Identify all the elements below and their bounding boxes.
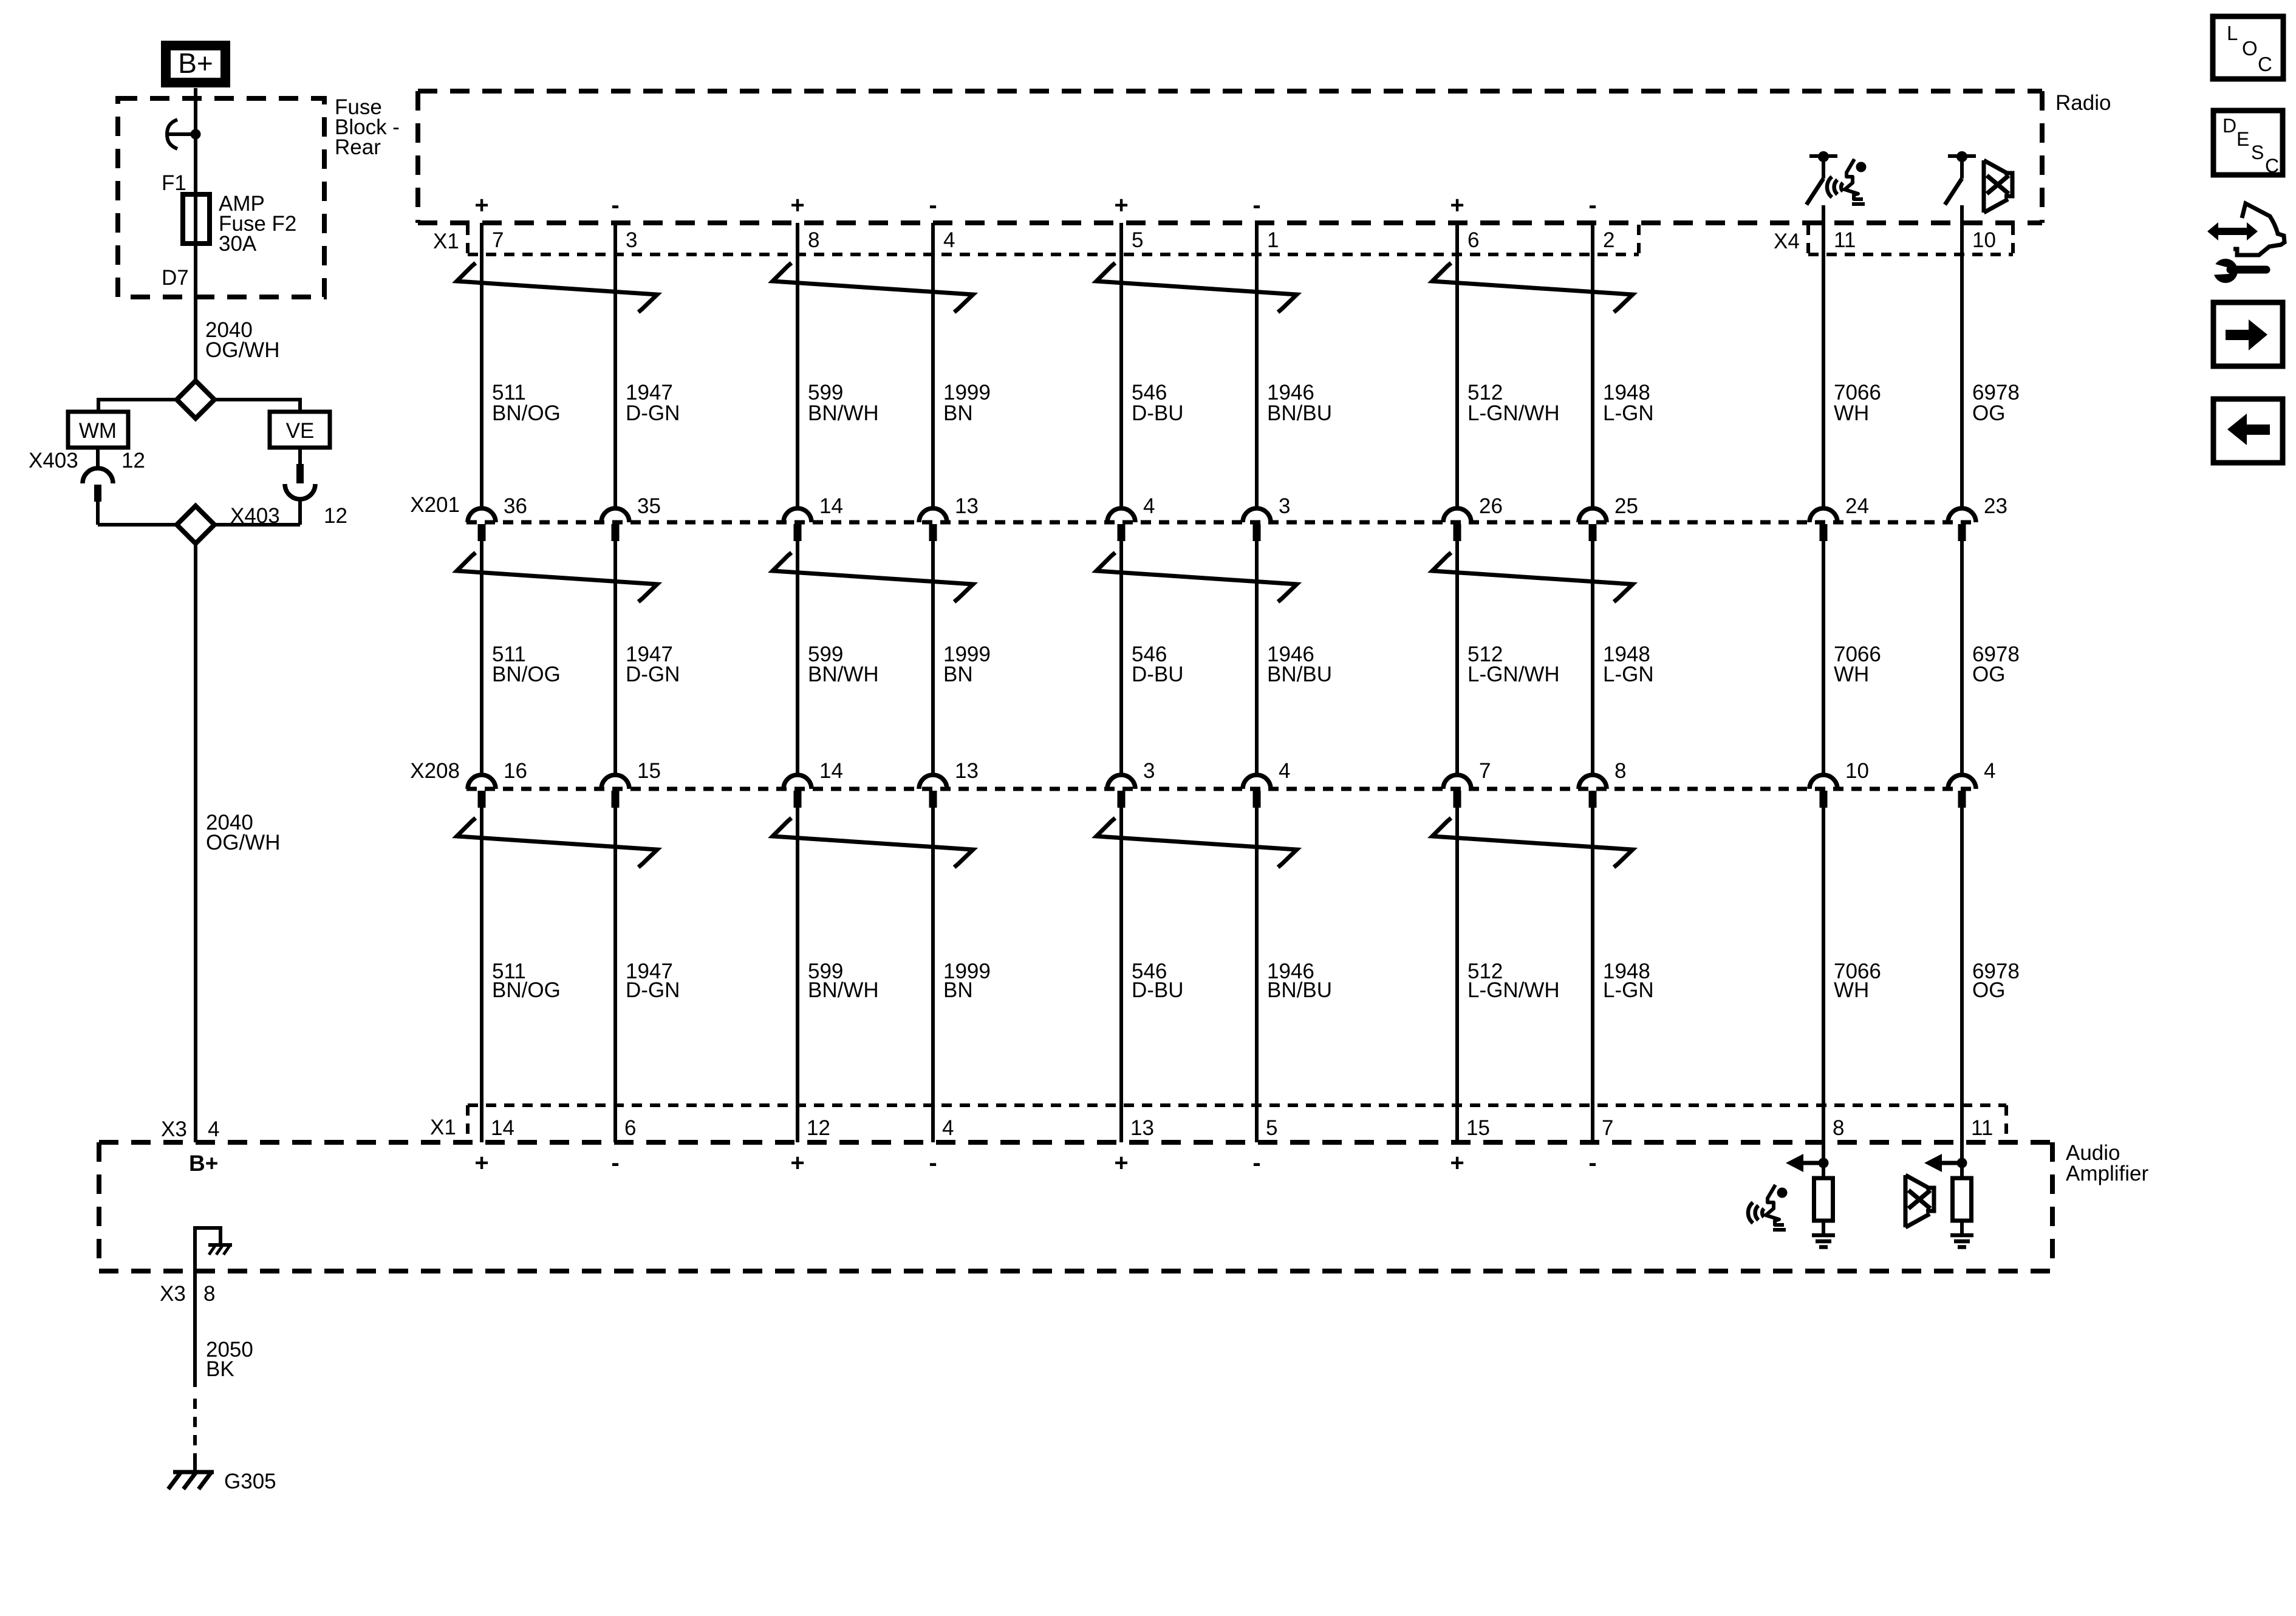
svg-text:14: 14: [819, 759, 843, 783]
svg-text:4: 4: [208, 1117, 219, 1141]
svg-text:14: 14: [819, 494, 843, 518]
svg-text:+: +: [474, 192, 488, 219]
svg-text:D-GN: D-GN: [626, 401, 680, 425]
svg-text:8: 8: [808, 228, 819, 252]
svg-text:D-BU: D-BU: [1132, 401, 1184, 425]
svg-text:X3: X3: [161, 1117, 187, 1141]
svg-text:4: 4: [942, 1116, 954, 1140]
svg-text:+: +: [1114, 1150, 1128, 1176]
svg-text:BN/OG: BN/OG: [492, 978, 561, 1002]
svg-text:23: 23: [1984, 494, 2007, 518]
svg-text:10: 10: [1845, 759, 1869, 783]
svg-text:X1: X1: [430, 1116, 456, 1139]
svg-text:-: -: [929, 1150, 937, 1176]
svg-text:8: 8: [1614, 759, 1626, 783]
svg-text:-: -: [611, 192, 619, 219]
svg-text:BN/WH: BN/WH: [808, 978, 879, 1002]
svg-text:X4: X4: [1774, 230, 1800, 253]
svg-text:BN/WH: BN/WH: [808, 663, 879, 686]
svg-text:8: 8: [203, 1282, 215, 1306]
svg-text:BN: BN: [943, 978, 973, 1002]
svg-text:13: 13: [1130, 1116, 1154, 1140]
svg-text:BN/OG: BN/OG: [492, 401, 561, 425]
svg-text:14: 14: [491, 1116, 514, 1140]
svg-text:OG/WH: OG/WH: [205, 338, 279, 362]
svg-text:OG: OG: [1972, 401, 2005, 425]
svg-text:13: 13: [955, 759, 979, 783]
svg-text:L-GN/WH: L-GN/WH: [1467, 401, 1560, 425]
svg-text:BN: BN: [943, 401, 973, 425]
svg-text:-: -: [1252, 1150, 1260, 1176]
svg-text:X3: X3: [160, 1282, 186, 1306]
svg-text:X1: X1: [433, 230, 459, 253]
svg-text:5: 5: [1132, 228, 1143, 252]
svg-text:5: 5: [1266, 1116, 1277, 1140]
svg-text:C: C: [2258, 53, 2272, 75]
svg-text:BN: BN: [943, 663, 973, 686]
svg-text:D-BU: D-BU: [1132, 978, 1184, 1002]
svg-text:S: S: [2251, 141, 2264, 163]
svg-text:Radio: Radio: [2055, 91, 2111, 115]
svg-text:D-BU: D-BU: [1132, 663, 1184, 686]
svg-text:2: 2: [1603, 228, 1614, 252]
svg-text:E: E: [2236, 128, 2249, 150]
svg-text:-: -: [1588, 1150, 1596, 1176]
svg-text:D-GN: D-GN: [626, 663, 680, 686]
svg-text:BN/WH: BN/WH: [808, 401, 879, 425]
svg-text:D: D: [2223, 115, 2236, 137]
svg-text:6: 6: [624, 1116, 636, 1140]
svg-text:+: +: [790, 192, 804, 219]
svg-text:OG: OG: [1972, 663, 2005, 686]
svg-text:11: 11: [1971, 1116, 1993, 1140]
svg-text:BK: BK: [206, 1357, 234, 1381]
svg-text:VE: VE: [286, 419, 315, 443]
svg-text:X208: X208: [410, 759, 460, 783]
svg-text:BN/OG: BN/OG: [492, 663, 561, 686]
svg-text:11: 11: [1834, 228, 1856, 252]
svg-text:3: 3: [1279, 494, 1290, 518]
svg-text:7: 7: [1479, 759, 1491, 783]
svg-text:+: +: [1114, 192, 1128, 219]
svg-text:OG: OG: [1972, 978, 2005, 1002]
svg-text:BN/BU: BN/BU: [1267, 978, 1332, 1002]
svg-text:+: +: [1450, 1150, 1464, 1176]
svg-text:WH: WH: [1834, 663, 1869, 686]
svg-text:24: 24: [1845, 494, 1869, 518]
svg-text:1: 1: [1267, 228, 1279, 252]
svg-text:B+: B+: [189, 1151, 218, 1176]
svg-text:G305: G305: [224, 1470, 276, 1493]
svg-text:BN/BU: BN/BU: [1267, 663, 1332, 686]
svg-text:4: 4: [943, 228, 955, 252]
svg-text:10: 10: [1972, 228, 1996, 252]
svg-text:L-GN: L-GN: [1603, 978, 1654, 1002]
svg-text:7: 7: [492, 228, 504, 252]
svg-text:4: 4: [1279, 759, 1290, 783]
svg-text:L: L: [2227, 22, 2238, 44]
svg-text:12: 12: [121, 449, 145, 472]
svg-text:X201: X201: [410, 493, 460, 517]
svg-text:15: 15: [1466, 1116, 1490, 1140]
svg-text:+: +: [790, 1150, 804, 1176]
svg-text:WM: WM: [79, 419, 117, 443]
svg-text:4: 4: [1984, 759, 1995, 783]
svg-text:D7: D7: [162, 266, 189, 290]
svg-text:8: 8: [1833, 1116, 1844, 1140]
svg-text:D-GN: D-GN: [626, 978, 680, 1002]
svg-text:L-GN/WH: L-GN/WH: [1467, 663, 1560, 686]
svg-text:B+: B+: [178, 47, 213, 79]
svg-text:+: +: [474, 1150, 488, 1176]
svg-text:12: 12: [807, 1116, 830, 1140]
svg-text:F1: F1: [162, 171, 186, 195]
svg-text:Amplifier: Amplifier: [2066, 1162, 2148, 1185]
svg-text:-: -: [929, 192, 937, 219]
svg-text:O: O: [2242, 37, 2258, 60]
svg-text:BN/BU: BN/BU: [1267, 401, 1332, 425]
svg-text:30A: 30A: [219, 232, 257, 256]
svg-text:12: 12: [324, 504, 347, 528]
svg-text:Rear: Rear: [335, 135, 381, 159]
svg-text:L-GN: L-GN: [1603, 663, 1654, 686]
svg-text:-: -: [611, 1150, 619, 1176]
svg-text:L-GN/WH: L-GN/WH: [1467, 978, 1560, 1002]
svg-text:OG/WH: OG/WH: [206, 831, 280, 854]
svg-text:35: 35: [637, 494, 661, 518]
svg-text:+: +: [1450, 192, 1464, 219]
svg-text:36: 36: [504, 494, 527, 518]
svg-text:13: 13: [955, 494, 979, 518]
svg-text:15: 15: [637, 759, 661, 783]
svg-text:WH: WH: [1834, 401, 1869, 425]
svg-text:-: -: [1588, 192, 1596, 219]
svg-text:L-GN: L-GN: [1603, 401, 1654, 425]
svg-text:26: 26: [1479, 494, 1503, 518]
svg-text:-: -: [1252, 192, 1260, 219]
svg-text:7: 7: [1602, 1116, 1613, 1140]
svg-text:3: 3: [1143, 759, 1155, 783]
svg-text:C: C: [2265, 155, 2279, 177]
svg-text:16: 16: [504, 759, 527, 783]
svg-text:6: 6: [1467, 228, 1479, 252]
svg-text:X403: X403: [29, 449, 78, 472]
svg-text:4: 4: [1143, 494, 1155, 518]
svg-text:25: 25: [1614, 494, 1638, 518]
svg-text:WH: WH: [1834, 978, 1869, 1002]
svg-text:3: 3: [626, 228, 637, 252]
